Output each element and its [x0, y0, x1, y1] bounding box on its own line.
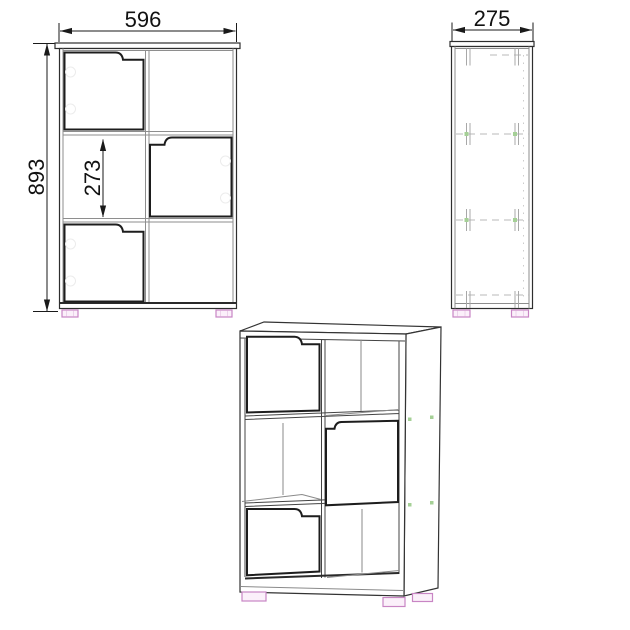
arrowhead-bottom [44, 300, 50, 312]
arrowhead-top [44, 44, 50, 56]
arrowhead-left [60, 28, 72, 34]
connector-dot [408, 418, 412, 422]
arrowhead-left [453, 27, 465, 33]
door-bottom-left [247, 509, 320, 575]
foot-front [453, 310, 470, 317]
perspective-view [240, 322, 441, 607]
front-view: 596 893 [24, 7, 240, 317]
connector-dot [465, 132, 469, 136]
technical-drawing: 596 893 [0, 0, 630, 630]
front-width-dimension: 596 [59, 7, 237, 42]
top-panel [55, 43, 240, 49]
front-feet [62, 310, 232, 317]
height-dimension-label: 893 [24, 159, 49, 196]
door-middle-right [326, 421, 398, 506]
foot-right [216, 310, 232, 317]
cabinet-body [452, 47, 533, 309]
foot-front-left [242, 592, 266, 601]
side-feet [453, 310, 529, 317]
connector-dot [513, 132, 517, 136]
side-face [404, 327, 441, 596]
drawing-page: 596 893 [0, 0, 630, 630]
door-top-left [247, 337, 320, 413]
front-height-dimension: 893 [24, 44, 58, 312]
side-cabinet [450, 42, 534, 318]
front-cabinet: 273 [55, 43, 240, 317]
door-middle-right [150, 138, 232, 217]
cell-dimension-label: 273 [80, 160, 105, 197]
door-top-left [65, 53, 144, 130]
foot-left [62, 310, 78, 317]
side-view: 275 [450, 6, 534, 317]
foot-back [512, 310, 529, 317]
top-panel [450, 42, 534, 47]
foot-detail-lines [67, 311, 228, 317]
connector-dot [430, 416, 434, 420]
foot-front-right [383, 598, 405, 607]
door-bottom-left [65, 225, 144, 302]
arrowhead-right [520, 27, 532, 33]
width-dimension-label: 596 [125, 7, 162, 32]
connector-dot [465, 218, 469, 222]
connector-dot [513, 218, 517, 222]
depth-dimension-label: 275 [474, 6, 511, 31]
arrowhead-right [224, 28, 236, 34]
connector-dot [430, 501, 434, 505]
connector-dot [408, 503, 412, 507]
foot-back-right [413, 594, 433, 602]
side-depth-dimension: 275 [452, 6, 533, 41]
